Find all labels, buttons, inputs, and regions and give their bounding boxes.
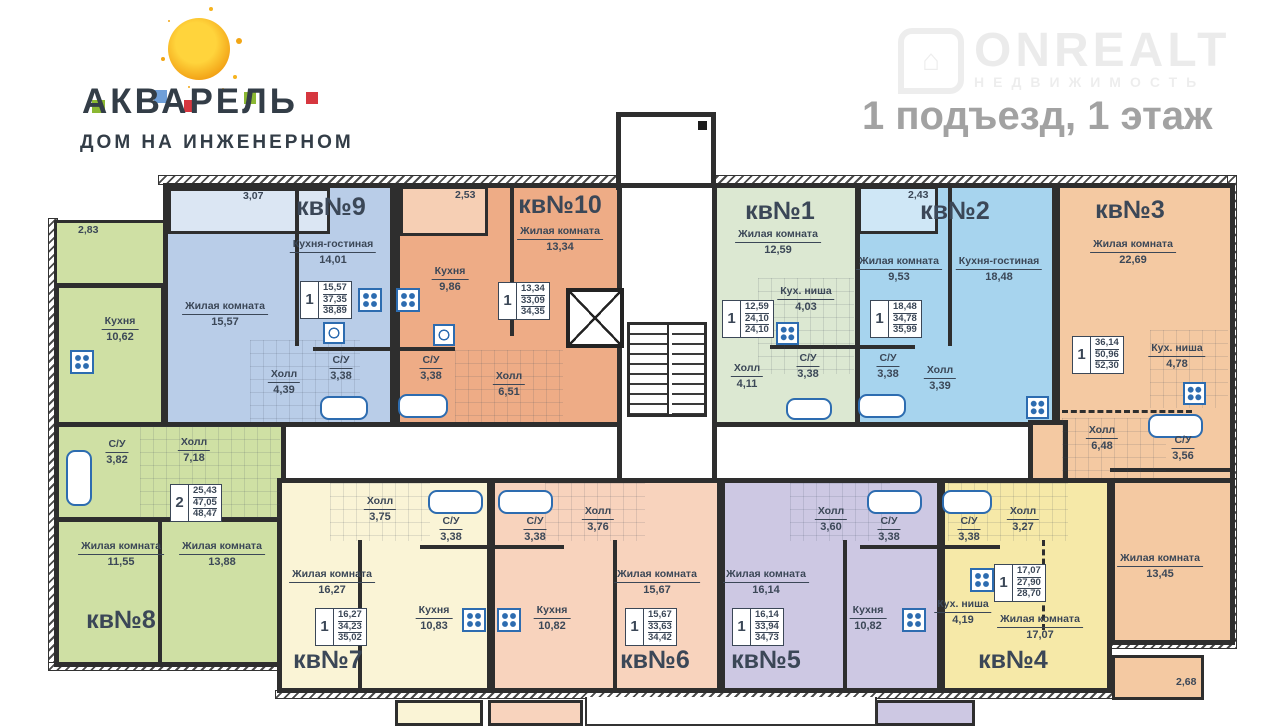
apartment-4-badge: 1 17,0727,9028,70: [994, 564, 1046, 602]
apartment-10-badge: 1 13,3433,0934,35: [498, 282, 550, 320]
bathtub-icon: [498, 490, 553, 514]
room-label: С/У3,82: [105, 438, 128, 468]
stove-icon: [497, 608, 521, 632]
partition-dashed: [1062, 410, 1192, 413]
room-label: Жилая комната13,88: [179, 540, 265, 570]
stove-icon: [1026, 396, 1049, 419]
room-label: Холл4,11: [731, 362, 763, 392]
room-label: Жилая комната9,53: [856, 255, 942, 285]
apartment-1-badge: 1 12,5924,1024,10: [722, 300, 774, 338]
building-entrance-area: [585, 697, 877, 726]
room-label: Кухня10,83: [416, 604, 453, 634]
room-label: Жилая комната16,14: [723, 568, 809, 598]
apartment-6-lower-balcony: [488, 700, 583, 726]
partition: [770, 345, 860, 349]
balcony-dim: 3,07: [243, 190, 263, 202]
stove-icon: [396, 288, 420, 312]
apartment-6-badge: 1 15,6733,6334,42: [625, 608, 677, 646]
watermark: ⌂ ONREALT НЕДВИЖИМОСТЬ: [898, 28, 1230, 94]
balcony-dim: 2,53: [455, 189, 475, 201]
apartment-8-title: кв№8: [86, 606, 156, 635]
room-label: Кухня-гостиная14,01: [290, 238, 376, 268]
apartment-10-title: кв№10: [518, 191, 602, 220]
bathtub-icon: [786, 398, 832, 420]
apartment-2-badge: 1 18,4834,7835,99: [870, 300, 922, 338]
vestibule-marker: [698, 121, 707, 130]
room-label: Холл7,18: [178, 436, 210, 466]
balcony-dim: 2,83: [78, 224, 98, 236]
apartment-9-badge: 1 15,5737,3538,89: [300, 281, 352, 319]
room-label: С/У3,38: [796, 352, 819, 382]
room-label: Жилая комната22,69: [1090, 238, 1176, 268]
apartment-4-title: кв№4: [978, 646, 1048, 675]
bathtub-icon: [867, 490, 922, 514]
floorplan-page: АКВАРЕЛЬ ДОМ НА ИНЖЕНЕРНОМ ⌂ ONREALT НЕД…: [0, 0, 1280, 726]
room-label: Холл3,27: [1007, 505, 1039, 535]
bathtub-icon: [428, 490, 483, 514]
room-label: Жилая комната17,07: [997, 613, 1083, 643]
stove-icon: [70, 350, 94, 374]
apartment-8-badge: 2 25,4347,0548,47: [170, 484, 222, 522]
partition: [313, 347, 395, 351]
room-label: Жилая комната16,27: [289, 568, 375, 598]
apartment-2-title: кв№2: [920, 197, 990, 226]
elevator-shaft-icon: [566, 288, 624, 348]
room-label: С/У3,38: [876, 352, 899, 382]
apartment-9-title: кв№9: [296, 193, 366, 222]
room-label: Кухня10,82: [534, 604, 571, 634]
apartment-7-badge: 1 16,2734,2335,02: [315, 608, 367, 646]
room-label: Холл3,76: [582, 505, 614, 535]
apartment-6-title: кв№6: [620, 646, 690, 675]
apartment-3-region: [1055, 183, 1235, 483]
stove-icon: [1183, 382, 1206, 405]
room-label: Холл3,75: [364, 495, 396, 525]
room-label: Жилая комната15,67: [614, 568, 700, 598]
partition: [395, 347, 455, 351]
washer-icon: [323, 322, 345, 344]
room-label: Жилая комната13,34: [517, 225, 603, 255]
stove-icon: [358, 288, 382, 312]
partition: [492, 545, 564, 549]
house-pin-icon: ⌂: [898, 28, 964, 94]
page-title: 1 подъезд, 1 этаж: [862, 94, 1212, 139]
room-label: Холл6,48: [1086, 424, 1118, 454]
room-label: Кухня-гостиная18,48: [956, 255, 1042, 285]
room-label: С/У3,38: [523, 515, 546, 545]
logo-sun-icon: [168, 18, 230, 80]
apartment-1-title: кв№1: [745, 197, 815, 226]
room-label: Холл6,51: [493, 370, 525, 400]
stairs-icon: [627, 322, 707, 417]
apartment-7-lower-balcony: [395, 700, 483, 726]
partition: [855, 345, 915, 349]
room-label: Кух. ниша4,78: [1148, 342, 1205, 372]
room-label: Холл3,39: [924, 364, 956, 394]
watermark-text: ONREALT: [974, 28, 1230, 74]
balcony-dim: 2,68: [1176, 676, 1196, 688]
room-label: Жилая комната13,45: [1117, 552, 1203, 582]
room-label: С/У3,38: [329, 354, 352, 384]
apartment-8-balcony: [54, 220, 166, 286]
apartment-3-badge: 1 36,1450,9652,30: [1072, 336, 1124, 374]
apartment-5-title: кв№5: [731, 646, 801, 675]
room-label: Кухня10,82: [850, 604, 887, 634]
apartment-3-title: кв№3: [1095, 196, 1165, 225]
room-label: Кухня9,86: [432, 265, 469, 295]
stove-icon: [970, 568, 994, 592]
logo-title: АКВАРЕЛЬ: [82, 82, 298, 122]
stove-icon: [776, 322, 799, 345]
partition: [940, 545, 1000, 549]
room-label: Холл3,60: [815, 505, 847, 535]
room-label: Кух. ниша4,19: [934, 598, 991, 628]
room-label: С/У3,38: [419, 354, 442, 384]
partition: [613, 540, 617, 690]
room-label: Жилая комната11,55: [78, 540, 164, 570]
partition: [420, 545, 492, 549]
apartment-7-title: кв№7: [293, 646, 363, 675]
washer-icon: [433, 324, 455, 346]
logo-subtitle: ДОМ НА ИНЖЕНЕРНОМ: [80, 132, 354, 154]
bathtub-icon: [942, 490, 992, 514]
room-label: Кухня10,62: [102, 315, 139, 345]
room-label: Жилая комната12,59: [735, 228, 821, 258]
partition: [843, 540, 847, 690]
apartment-5-lower-balcony: [875, 700, 975, 726]
room-label: С/У3,38: [877, 515, 900, 545]
room-label: С/У3,38: [957, 515, 980, 545]
room-label: С/У3,56: [1171, 434, 1194, 464]
bathtub-icon: [398, 394, 448, 418]
room-label: Кух. ниша4,03: [777, 285, 834, 315]
apartment-3-hall-region: [1028, 420, 1068, 483]
room-label: Холл4,39: [268, 368, 300, 398]
room-label: С/У3,38: [439, 515, 462, 545]
room-label: Жилая комната15,57: [182, 300, 268, 330]
bathtub-icon: [858, 394, 906, 418]
stove-icon: [462, 608, 486, 632]
bathtub-icon: [66, 450, 92, 506]
partition: [1110, 468, 1235, 472]
entrance-vestibule: [616, 112, 716, 190]
watermark-subtext: НЕДВИЖИМОСТЬ: [974, 74, 1230, 90]
apartment-5-badge: 1 16,1433,9434,73: [732, 608, 784, 646]
logo-accent-red2-icon: [306, 92, 318, 104]
partition: [860, 545, 940, 549]
bathtub-icon: [320, 396, 368, 420]
stove-icon: [902, 608, 926, 632]
logo: АКВАРЕЛЬ: [82, 82, 342, 128]
